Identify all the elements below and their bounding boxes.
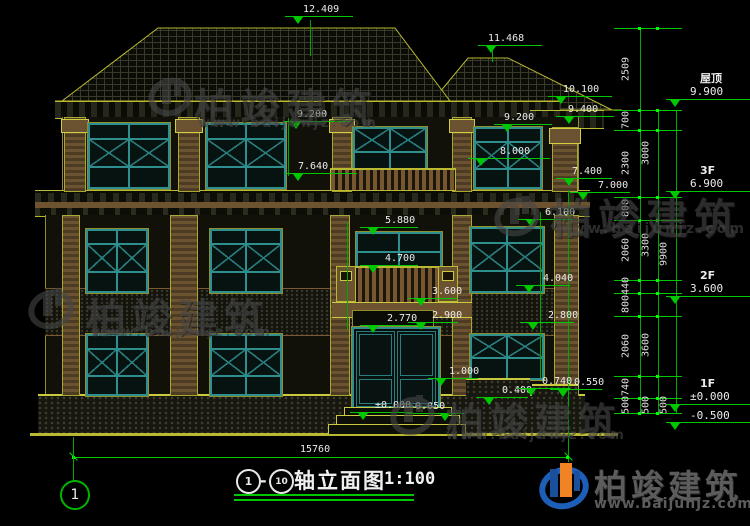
dim-tick <box>614 28 682 29</box>
leader-line <box>540 212 541 378</box>
elevation-marker: 7.640 <box>285 161 357 183</box>
total-dim-value: 15760 <box>300 444 330 455</box>
watermark-logo-icon <box>492 190 544 236</box>
brand-logo <box>538 455 590 515</box>
dim-tick <box>614 316 682 317</box>
window <box>210 229 282 293</box>
axis-bubble-number: 1 <box>71 487 80 503</box>
dim-value: 2300 <box>621 151 632 175</box>
dim-chain-line <box>676 110 677 413</box>
window <box>86 229 148 293</box>
balcony-post <box>336 266 356 302</box>
drawing-scale: 1:100 <box>384 469 435 489</box>
dim-value: 2060 <box>621 334 632 358</box>
title-axis-separator: - <box>260 471 267 490</box>
watermark-url: www.baijunjz.com <box>198 116 379 131</box>
elevation-marker: 4.040 <box>516 273 570 295</box>
title-axis-end-bubble: 10 <box>269 469 294 494</box>
elevation-marker: 4.700 <box>360 253 418 275</box>
elevation-drawing-canvas: 12.409 11.468 10.100 9.400 9.200 9.200 8… <box>0 0 750 526</box>
elevation-marker: 8.000 <box>468 146 550 168</box>
watermark-logo-icon <box>146 70 192 120</box>
elevation-marker: 2.770 <box>360 313 418 335</box>
elevation-marker: 2.800 <box>520 310 574 332</box>
dim-value: 3000 <box>641 141 652 165</box>
elevation-marker: 9.400 <box>556 104 614 126</box>
watermark-logo-icon <box>388 389 438 437</box>
floor-label-roof: 屋顶 9.900 <box>666 72 750 112</box>
elevation-marker: 5.880 <box>360 215 418 237</box>
watermark-logo-icon <box>26 280 76 332</box>
title-underline <box>234 499 414 501</box>
dim-value: 3600 <box>641 333 652 357</box>
leader-line <box>347 222 348 330</box>
elevation-marker: 12.409 <box>285 4 353 26</box>
pilaster-capital <box>549 128 581 144</box>
floor-label-minus500: -0.500 <box>666 409 750 435</box>
watermark-url: www.baijunjz.com <box>92 325 273 340</box>
dim-tick <box>614 130 682 131</box>
dim-value: 500 <box>621 396 632 414</box>
window <box>88 123 170 189</box>
dim-value: 700 <box>621 111 632 129</box>
window <box>470 334 544 380</box>
dim-value: 500 <box>641 396 652 414</box>
watermark-url: www.baijunjz.com <box>446 428 627 443</box>
elevation-marker: 3.600 <box>408 286 458 308</box>
pilaster-capital <box>61 119 89 133</box>
title-underline <box>234 494 414 496</box>
elevation-marker: 10.100 <box>548 84 612 106</box>
total-dim-line <box>73 457 568 458</box>
pilaster-capital <box>449 119 475 133</box>
drawing-title: 轴立面图 <box>294 465 386 495</box>
dim-value: 440 <box>621 277 632 295</box>
axis-bubble: 1 <box>60 480 90 510</box>
dim-value: 2509 <box>621 57 632 81</box>
dim-value: 740 <box>621 378 632 396</box>
elevation-marker: 1.000 <box>428 366 478 388</box>
brand-url: www.baijunjz.com <box>594 496 750 512</box>
elevation-marker: 9.200 <box>494 112 552 134</box>
dim-value: 800 <box>621 295 632 313</box>
title-axis-start-bubble: 1 <box>236 469 261 494</box>
axis-line <box>73 437 74 480</box>
watermark-url: www.baijunjz.com <box>556 221 747 237</box>
elevation-marker: 11.468 <box>478 33 542 55</box>
floor-label-2f: 2F 3.600 <box>666 269 750 309</box>
watermark-text: 柏竣建筑 <box>550 186 742 247</box>
